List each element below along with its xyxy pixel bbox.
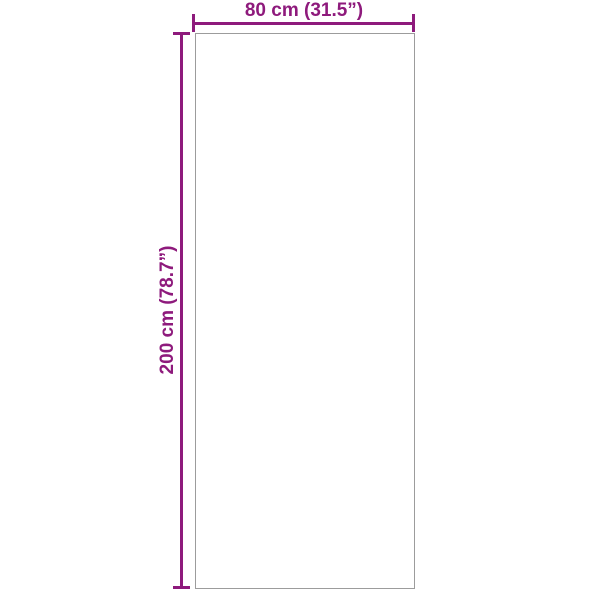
- height-dimension-tick-top: [173, 32, 190, 35]
- product-outline: [195, 33, 415, 589]
- height-dimension-tick-bottom: [173, 586, 190, 589]
- dimension-diagram: 80 cm (31.5”) 200 cm (78.7”): [0, 0, 600, 600]
- height-dimension-line: [180, 33, 183, 589]
- height-label: 200 cm (78.7”): [157, 150, 179, 470]
- width-dimension-line: [193, 22, 415, 25]
- width-label: 80 cm (31.5”): [193, 0, 415, 21]
